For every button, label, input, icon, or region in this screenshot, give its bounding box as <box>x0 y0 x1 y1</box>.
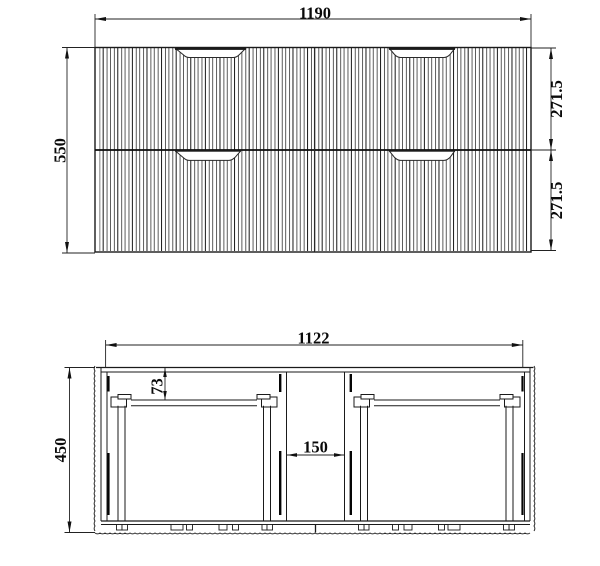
svg-text:450: 450 <box>51 438 70 463</box>
svg-text:150: 150 <box>303 437 328 456</box>
svg-text:550: 550 <box>51 138 70 163</box>
svg-text:271.5: 271.5 <box>547 182 566 220</box>
svg-text:73: 73 <box>147 378 166 395</box>
svg-text:1122: 1122 <box>297 328 329 347</box>
svg-text:271.5: 271.5 <box>547 80 566 118</box>
svg-text:1190: 1190 <box>299 3 331 22</box>
